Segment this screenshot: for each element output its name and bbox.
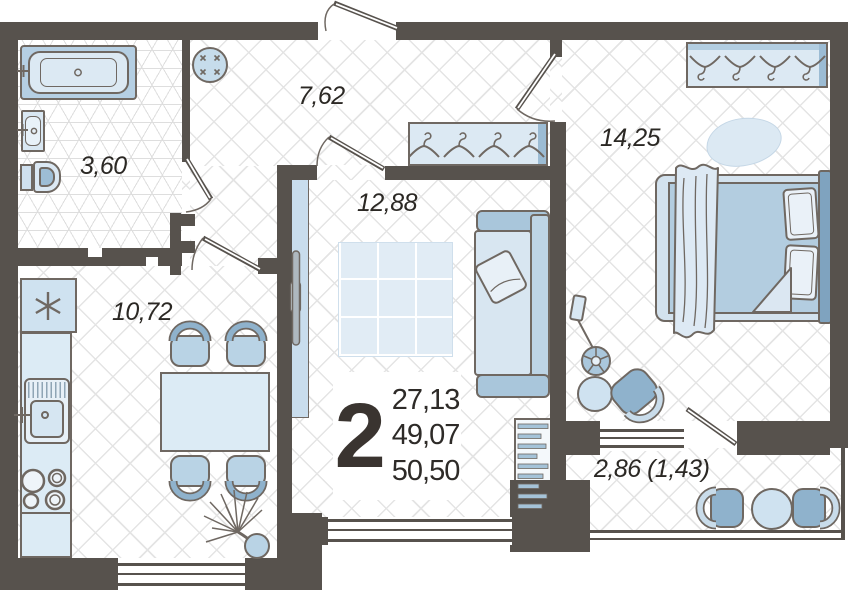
- balcony-chair-right: [793, 489, 836, 527]
- living-door: [317, 137, 384, 169]
- living-area-label: 12,88: [357, 189, 417, 218]
- snowflake-icon: [36, 292, 60, 320]
- entrance-door: [325, 3, 399, 31]
- bedroom-area-label: 14,25: [600, 124, 660, 153]
- bathroom-door: [186, 158, 211, 212]
- balcony-door: [687, 409, 736, 444]
- hanger-icon-down: [690, 56, 825, 80]
- stove-burners: [20, 470, 72, 513]
- balcony-area-label: 2,86 (1,43): [594, 455, 709, 484]
- bedroom-side-table: [578, 377, 612, 411]
- tv: [291, 251, 301, 345]
- hanger-icon: [409, 133, 544, 157]
- bedroom-armchair: [606, 364, 668, 427]
- kitchen-door: [192, 238, 261, 270]
- pouf-tufts: [201, 56, 220, 75]
- kitchen-area-label: 10,72: [112, 298, 172, 327]
- bedroom-door: [517, 53, 556, 121]
- dining-chairs: [171, 325, 265, 497]
- bathroom-area-label: 3,60: [80, 152, 127, 181]
- bathroom-sink-faucet-icon: [17, 124, 37, 136]
- palm-icon: [204, 490, 269, 558]
- duvet-fold: [753, 268, 791, 312]
- kitchen-faucet-icon: [14, 407, 48, 423]
- floor-plan: 2 27,13 49,07 50,50: [0, 0, 848, 595]
- floor-lamp-icon: [578, 320, 610, 375]
- bathtub-faucet-icon: [17, 65, 81, 77]
- bookshelf-slats: [518, 424, 548, 509]
- bed-throw: [674, 165, 718, 337]
- hallway-area-label: 7,62: [298, 82, 345, 111]
- balcony-table: [752, 489, 792, 529]
- balcony-chair-left: [700, 489, 743, 527]
- sofa-pillow: [474, 250, 527, 305]
